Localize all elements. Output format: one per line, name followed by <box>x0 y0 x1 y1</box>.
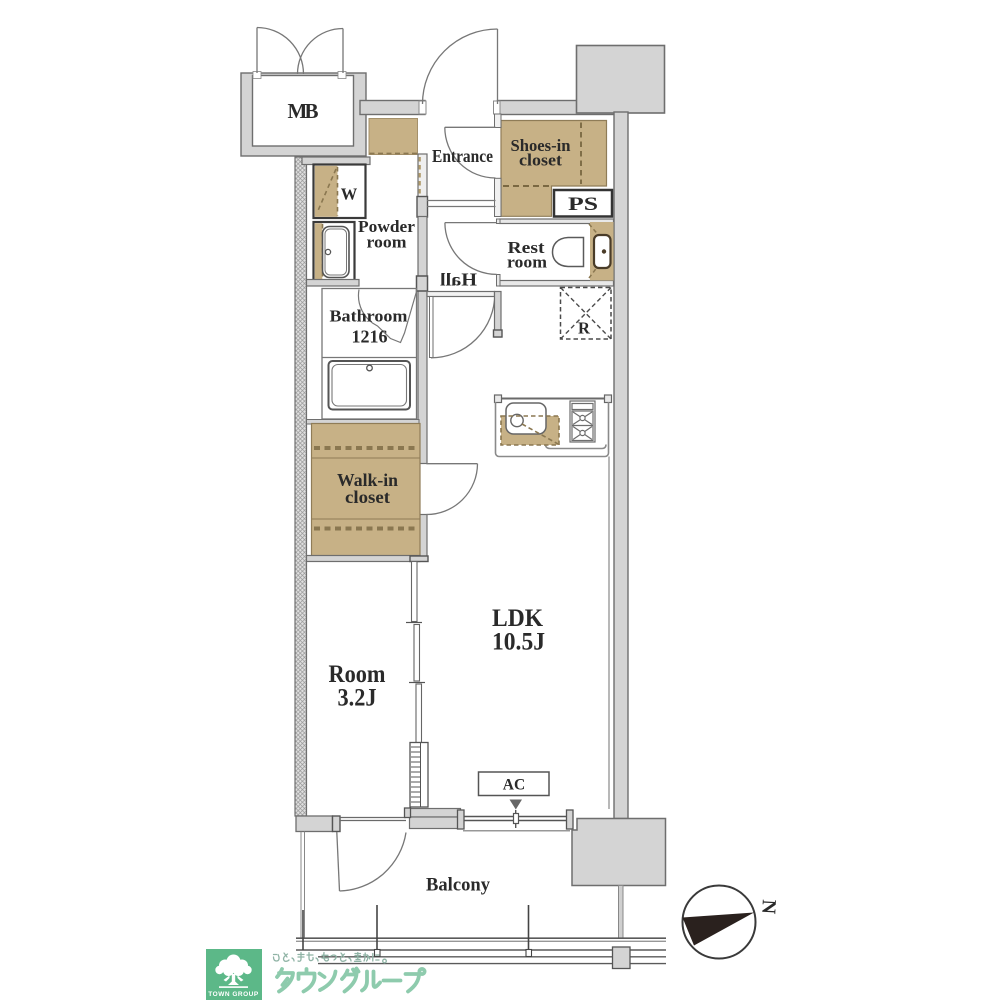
svg-text:Entrance: Entrance <box>432 146 493 166</box>
svg-text:W: W <box>341 185 358 204</box>
svg-text:3.2J: 3.2J <box>338 683 377 712</box>
svg-text:AC: AC <box>503 777 525 794</box>
svg-text:closet: closet <box>345 487 390 507</box>
svg-text:N: N <box>757 899 780 915</box>
svg-text:1216: 1216 <box>352 327 388 347</box>
svg-text:Bathroom: Bathroom <box>330 307 408 326</box>
svg-text:R: R <box>578 319 591 338</box>
svg-text:room: room <box>367 233 407 252</box>
svg-text:Hall: Hall <box>440 270 477 290</box>
svg-text:TOWN GROUP: TOWN GROUP <box>208 991 259 998</box>
svg-text:closet: closet <box>519 151 563 170</box>
svg-text:room: room <box>507 253 547 272</box>
svg-text:PS: PS <box>568 195 598 215</box>
svg-text:Balcony: Balcony <box>426 876 491 896</box>
svg-text:10.5J: 10.5J <box>492 627 545 656</box>
svg-text:MB: MB <box>288 99 319 123</box>
